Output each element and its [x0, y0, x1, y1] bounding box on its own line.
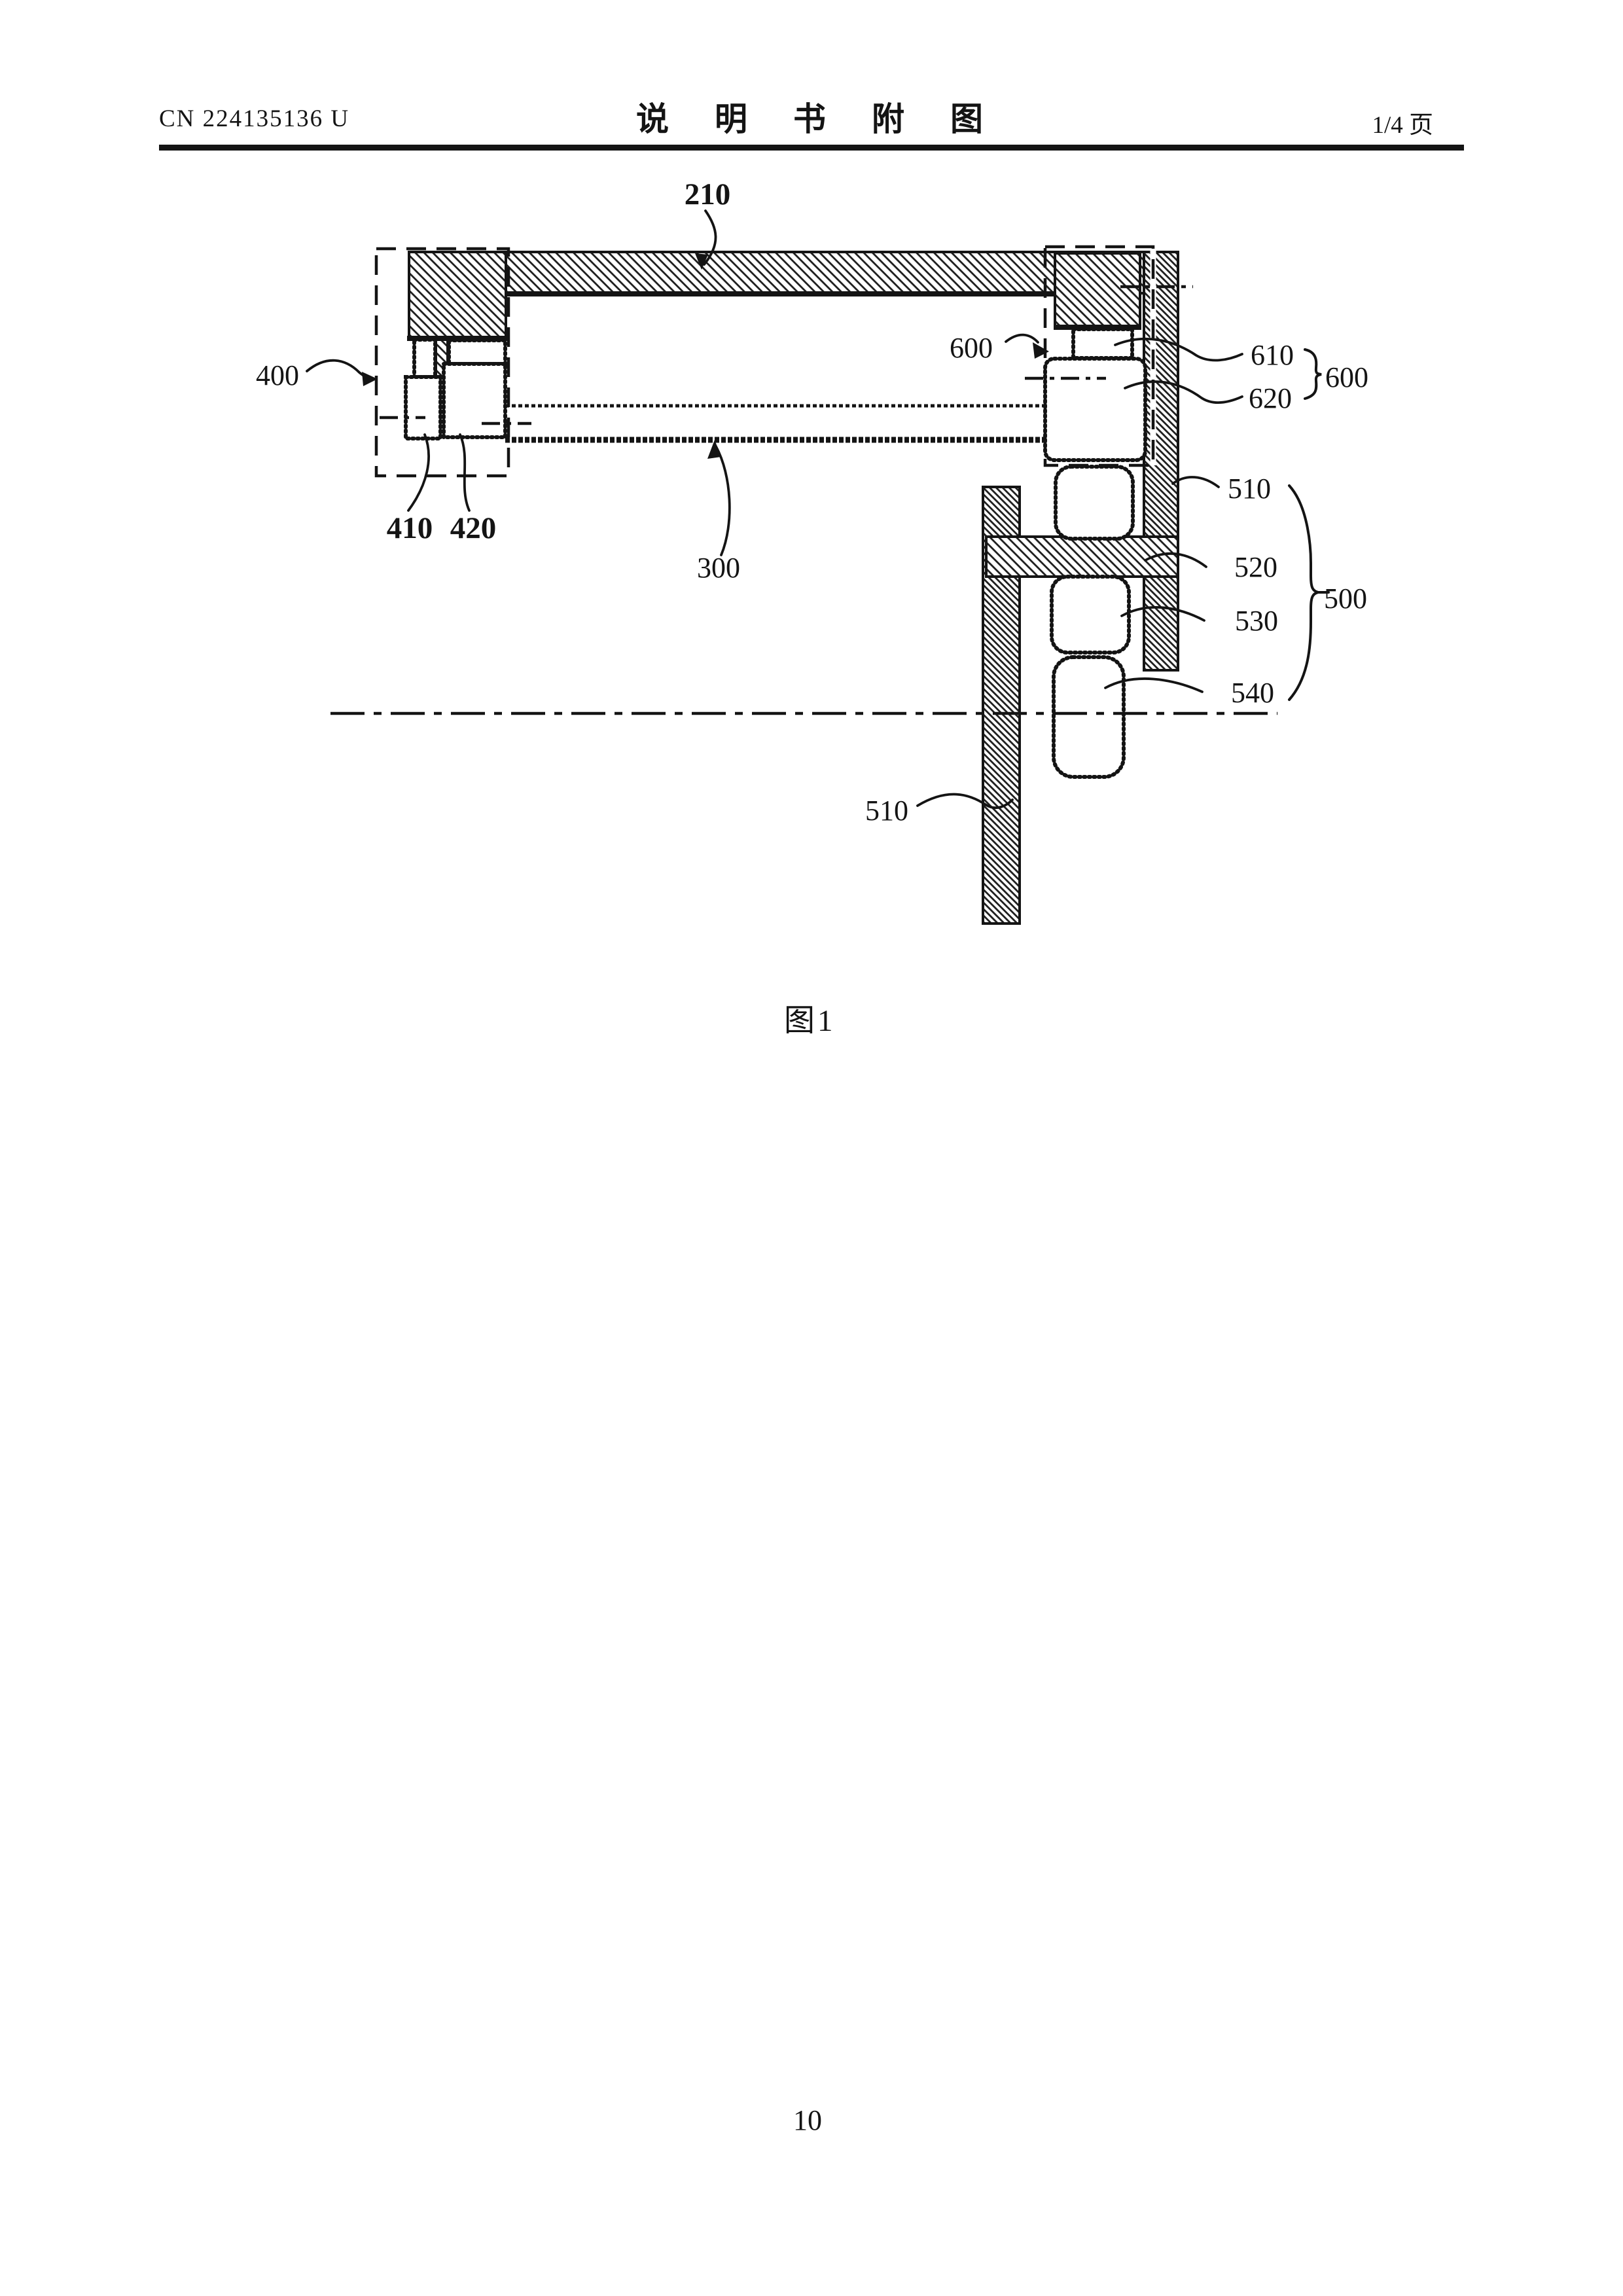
leader-400 — [307, 361, 370, 378]
ref-label-530: 530 — [1235, 605, 1278, 637]
bracket-500-group — [1289, 486, 1318, 700]
ref-label-400: 400 — [256, 359, 299, 391]
ref-label-610: 610 — [1251, 339, 1294, 371]
leader-410 — [408, 435, 429, 511]
ref-label-520: 520 — [1234, 551, 1277, 583]
roller-540 — [1054, 657, 1124, 777]
roller-upper — [1056, 467, 1133, 539]
ref-label-540: 540 — [1231, 677, 1274, 709]
figure-1-drawing: 210 400 410 420 300 600 610 620 600 510 … — [0, 0, 1623, 2296]
rod-300 — [505, 406, 1047, 440]
left-clamp-piece-flat — [449, 340, 505, 364]
figure-caption: 图1 — [784, 995, 836, 1040]
leader-300 — [716, 446, 730, 555]
ref-label-600-left: 600 — [950, 332, 993, 364]
ref-label-620: 620 — [1249, 382, 1292, 414]
clamp-block-410 — [406, 377, 440, 439]
ref-label-510-upper: 510 — [1228, 473, 1271, 505]
top-beam-210 — [409, 252, 1149, 293]
ref-label-300: 300 — [697, 552, 740, 584]
horizontal-plate-520 — [986, 537, 1178, 577]
clamp-block-420 — [444, 364, 505, 437]
ref-label-500: 500 — [1324, 583, 1367, 615]
page-number: 10 — [793, 2104, 822, 2137]
connector-body-620 — [1045, 359, 1145, 460]
leader-600-left — [1006, 335, 1038, 342]
left-clamp-piece-small — [414, 340, 435, 377]
roller-530 — [1052, 577, 1129, 653]
rod-body — [505, 407, 1047, 440]
leader-420 — [460, 435, 469, 511]
leader-510-upper — [1173, 477, 1219, 487]
ref-label-420: 420 — [450, 511, 497, 545]
ref-label-210: 210 — [685, 177, 731, 211]
ref-label-410: 410 — [387, 511, 433, 545]
patent-drawing-page: CN 224135136 U 说明书附图 1/4 页 — [0, 0, 1623, 2296]
ref-label-510-lower: 510 — [865, 795, 908, 827]
brace-600-group — [1305, 350, 1321, 399]
right-mount-block — [1055, 253, 1140, 327]
left-end-block — [409, 252, 506, 338]
ref-label-600-right: 600 — [1325, 361, 1368, 393]
fastener-610 — [1073, 329, 1132, 358]
